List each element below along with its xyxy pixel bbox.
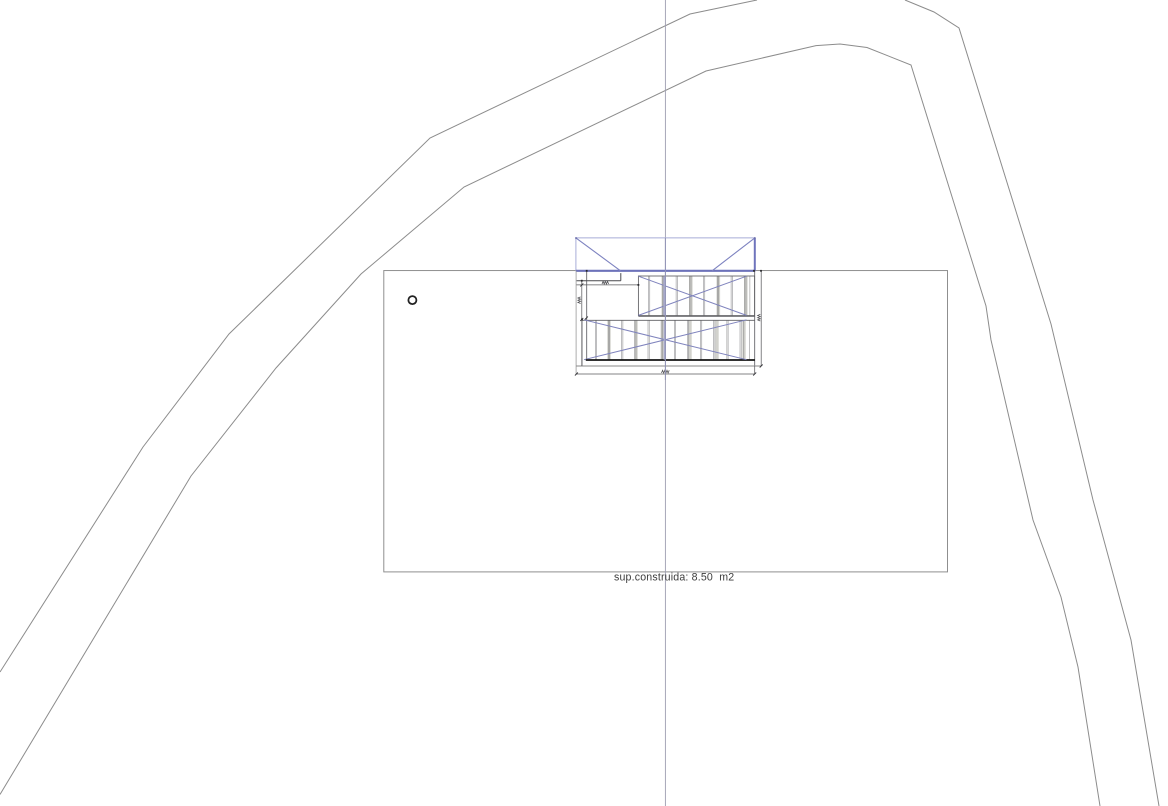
svg-text:sup.construida: 8.50 m2: sup.construida: 8.50 m2 bbox=[614, 572, 734, 584]
